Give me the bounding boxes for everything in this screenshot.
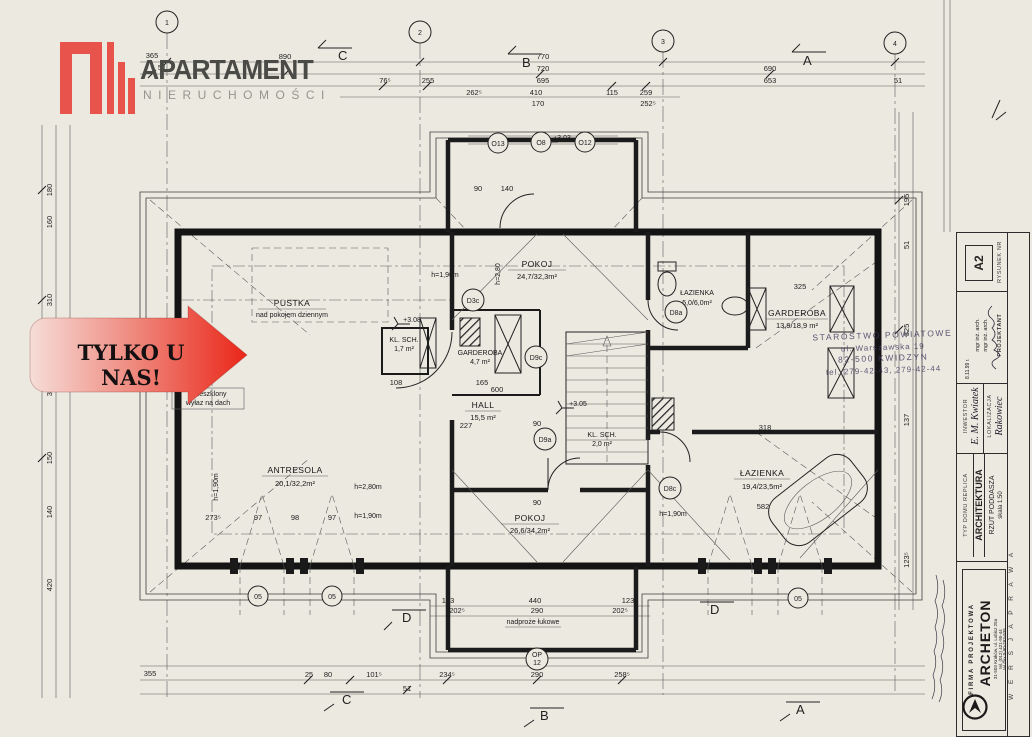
room-garderoba-right-area: 13,9/18,9 m²	[776, 321, 819, 330]
svg-text:720: 720	[537, 64, 550, 73]
logo-title: APARTAMENT	[140, 54, 313, 86]
location-name: Rakowiec	[994, 383, 1005, 449]
svg-text:51: 51	[894, 76, 902, 85]
level-305: +3.05	[569, 401, 587, 408]
ref-d9c: D9c	[530, 355, 543, 362]
room-klsch-small: KL. SCH.	[389, 337, 418, 344]
grid-bubble-4: 4	[893, 41, 897, 48]
level-303: +3.03	[553, 135, 571, 142]
ref-d9a: D9a	[539, 437, 552, 444]
grid-bubble-2: 2	[418, 30, 422, 37]
svg-text:290: 290	[531, 606, 544, 615]
ref-d3c: D3c	[467, 298, 480, 305]
section-bottom-c: C	[342, 692, 351, 707]
svg-text:90: 90	[533, 498, 541, 507]
branch-title: ARCHITEKTURA	[973, 453, 985, 557]
svg-text:325: 325	[794, 282, 807, 291]
bathtub	[761, 447, 874, 553]
drawing-number-label: RYSUNEK NR	[997, 237, 1003, 287]
height-190-left: h=1,90m	[354, 513, 382, 520]
room-pokoj-bottom: POKOJ	[515, 513, 546, 523]
title-block: A2 RYSUNEK NR PROJEKTANT mgr inż. arch. …	[956, 232, 1030, 737]
room-lazienka-small-area: 5,0/6,0m²	[682, 300, 712, 307]
grid-bubble-3: 3	[661, 39, 665, 46]
room-lazienka-big: ŁAZIENKA	[740, 468, 784, 478]
svg-text:51: 51	[902, 241, 911, 249]
room-pustka: PUSTKA	[274, 298, 310, 308]
office-stamp: STAROSTWO POWIATOWE ul. Warszawska 19 82…	[787, 327, 978, 380]
svg-text:140: 140	[45, 506, 54, 519]
location-label: LOKALIZACJA	[987, 383, 993, 449]
ref-op-num: 12	[533, 660, 541, 667]
svg-text:259: 259	[640, 88, 653, 97]
svg-text:76⁵: 76⁵	[379, 76, 390, 85]
svg-text:410: 410	[530, 88, 543, 97]
room-lazienka-small: ŁAZIENKA	[680, 290, 714, 297]
room-labels: PUSTKA nad pokojem dziennym ANTRESOLA 20…	[256, 259, 828, 535]
version-strip: W E R S J A P R A W A	[1008, 230, 1015, 700]
grid-bubble-1: 1	[165, 20, 169, 27]
svg-text:123⁵: 123⁵	[902, 552, 911, 568]
svg-text:440: 440	[529, 596, 542, 605]
promo-banner-text: TYLKO U NAS!	[56, 340, 206, 390]
svg-text:101⁵: 101⁵	[366, 670, 382, 679]
svg-text:582: 582	[757, 502, 770, 511]
firm-name: ARCHETON	[977, 573, 993, 713]
designer-signature	[987, 297, 1001, 373]
section-bottom-d1: D	[402, 610, 411, 625]
svg-text:258⁵: 258⁵	[614, 670, 630, 679]
room-pokoj-bottom-area: 26,6/34,2m²	[510, 526, 551, 535]
section-bottom-a: A	[796, 702, 805, 717]
svg-text:90: 90	[533, 419, 541, 428]
room-klsch: KL. SCH.	[587, 432, 616, 439]
ref-d8a: D8a	[670, 310, 683, 317]
section-bottom-d2: D	[710, 602, 719, 617]
svg-text:90: 90	[474, 184, 482, 193]
level-308: +3.08	[403, 317, 421, 324]
room-lazienka-big-area: 19,4/23,5m²	[742, 482, 783, 491]
svg-text:160: 160	[45, 216, 54, 229]
svg-text:252⁵: 252⁵	[640, 99, 656, 108]
ref-05b: 05	[328, 594, 336, 601]
ref-d8c: D8c	[664, 486, 677, 493]
drawing-number-box: A2	[965, 245, 993, 281]
room-hall-area: 15,5 m²	[470, 413, 496, 422]
svg-text:25: 25	[305, 670, 313, 679]
svg-text:234⁵: 234⁵	[439, 670, 455, 679]
investor-name: E. M. Kwiatek	[970, 383, 981, 449]
ref-05a: 05	[254, 594, 262, 601]
height-190-pokoj: h=1,90m	[431, 272, 459, 279]
svg-text:695: 695	[537, 76, 550, 85]
reference-bubbles: D3c D9c D9a D8a D8c O13 O8 O12 05 05 05 …	[248, 132, 808, 670]
svg-text:150: 150	[45, 452, 54, 465]
svg-text:80: 80	[324, 670, 332, 679]
svg-text:165: 165	[476, 378, 489, 387]
ref-o12: O12	[578, 140, 591, 147]
investor-label: INWESTOR	[963, 383, 969, 449]
sheet-scale: skala 1:50	[998, 453, 1004, 557]
ref-o13: O13	[491, 141, 504, 148]
svg-text:170: 170	[532, 99, 545, 108]
svg-text:202⁵: 202⁵	[449, 606, 465, 615]
height-190-bath: h=1,90m	[659, 511, 687, 518]
sink	[722, 297, 748, 315]
room-antresola-area: 20,1/32,2m²	[275, 479, 316, 488]
svg-text:51: 51	[403, 684, 411, 693]
svg-text:108: 108	[390, 378, 403, 387]
toilet	[658, 262, 676, 296]
room-klsch-area: 2,0 m²	[592, 441, 613, 448]
svg-text:290: 290	[531, 670, 544, 679]
height-280-left: h=2,80m	[354, 484, 382, 491]
room-garderoba-small: GARDEROBA	[458, 350, 503, 357]
ref-op: OP	[532, 652, 542, 659]
title-block-divider	[983, 383, 984, 453]
svg-text:653: 653	[764, 76, 777, 85]
pustka-void-outline	[252, 248, 388, 322]
ref-o8: O8	[536, 140, 545, 147]
svg-text:420: 420	[45, 579, 54, 592]
height-190-vert: h=1,90m	[213, 473, 220, 501]
svg-text:137: 137	[902, 414, 911, 427]
section-bottom-b: B	[540, 708, 549, 723]
room-klsch-small-area: 1,7 m²	[394, 346, 415, 353]
ref-05c: 05	[794, 596, 802, 603]
svg-text:98: 98	[291, 513, 299, 522]
svg-text:180: 180	[45, 184, 54, 197]
svg-text:262⁵: 262⁵	[466, 88, 482, 97]
room-pokoj-top-area: 24,7/32,3m²	[517, 272, 558, 281]
drawing-number: A2	[962, 250, 996, 276]
logo-subtitle: NIERUCHOMOŚCI	[143, 88, 331, 102]
designer-date: 8.11.99 r.	[965, 291, 971, 379]
title-block-divider	[957, 561, 1007, 562]
height-280-vert: h=2,80	[495, 263, 502, 285]
designer-name-1: mgr inż. arch.	[975, 291, 981, 379]
archeton-logo	[962, 694, 988, 720]
svg-text:273⁵: 273⁵	[205, 513, 221, 522]
svg-text:123: 123	[622, 596, 635, 605]
room-pokoj-top: POKOJ	[522, 259, 553, 269]
sheet-title: RZUT PODDASZA	[989, 453, 996, 557]
promo-banner: TYLKO U NAS!	[22, 298, 262, 413]
room-garderoba-small-area: 4,7 m²	[470, 359, 491, 366]
svg-text:770: 770	[537, 52, 550, 61]
svg-text:690: 690	[764, 64, 777, 73]
house-type: TYP DOMU REPLICA	[963, 453, 969, 557]
svg-text:227: 227	[460, 421, 473, 430]
room-antresola: ANTRESOLA	[267, 465, 322, 475]
svg-text:123: 123	[442, 596, 455, 605]
firm-address-3: tel./fax 0-90-293-936	[1002, 573, 1007, 725]
svg-text:97: 97	[254, 513, 262, 522]
section-top-b: B	[522, 55, 531, 70]
room-pustka-sub: nad pokojem dziennym	[256, 312, 328, 319]
room-hall: HALL	[472, 400, 495, 410]
apartament-logo: APARTAMENT NIERUCHOMOŚCI	[55, 30, 355, 125]
svg-text:318: 318	[759, 423, 772, 432]
svg-text:195: 195	[902, 194, 911, 207]
svg-text:97: 97	[328, 513, 336, 522]
lintel-label: nadproże łukowe	[507, 619, 560, 626]
room-garderoba-right: GARDEROBA	[768, 308, 826, 318]
svg-text:140: 140	[501, 184, 514, 193]
svg-text:355: 355	[144, 669, 157, 678]
svg-text:115: 115	[606, 88, 618, 97]
svg-text:202⁵: 202⁵	[612, 606, 628, 615]
svg-text:255: 255	[422, 76, 435, 85]
section-top-a: A	[803, 53, 812, 68]
svg-text:600: 600	[491, 385, 504, 394]
